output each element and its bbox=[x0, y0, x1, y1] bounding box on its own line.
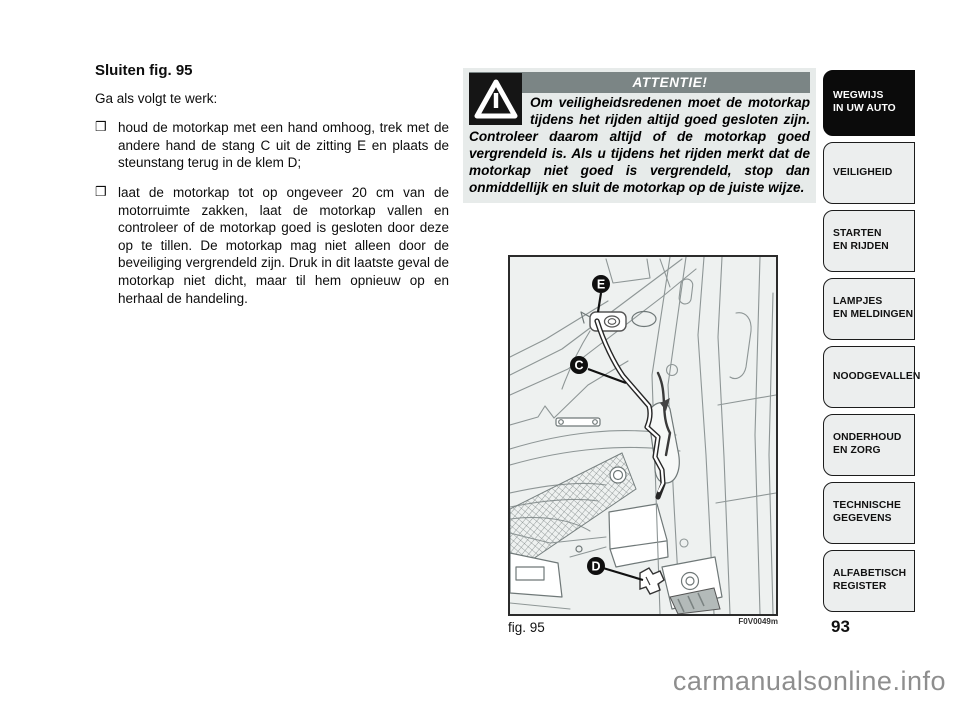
tab-label: LAMPJES EN MELDINGEN bbox=[833, 296, 913, 322]
section-intro: Ga als volgt te werk: bbox=[95, 90, 449, 108]
tab-label: ONDERHOUD EN ZORG bbox=[833, 432, 901, 458]
figure-label-c: C bbox=[574, 359, 583, 373]
sidebar-tab-wegwijs-in-uw-auto[interactable]: WEGWIJS IN UW AUTO bbox=[823, 70, 915, 136]
section-title: Sluiten fig. 95 bbox=[95, 62, 449, 80]
tab-label: TECHNISCHE GEGEVENS bbox=[833, 500, 901, 526]
tab-label: VEILIGHEID bbox=[833, 167, 892, 180]
bullet-square-icon: ❒ bbox=[95, 118, 107, 136]
tab-label: NOODGEVALLEN bbox=[833, 371, 920, 384]
engine-bay-diagram: E C D bbox=[510, 257, 776, 614]
sidebar-tab-noodgevallen[interactable]: NOODGEVALLEN bbox=[823, 346, 915, 408]
sidebar-tab-veiligheid[interactable]: VEILIGHEID bbox=[823, 142, 915, 204]
figure-label-e: E bbox=[597, 278, 605, 292]
sidebar-tab-lampjes-en-meldingen[interactable]: LAMPJES EN MELDINGEN bbox=[823, 278, 915, 340]
tab-label: STARTEN EN RIJDEN bbox=[833, 228, 889, 254]
watermark-link[interactable]: carmanualsonline.info bbox=[673, 666, 946, 697]
tab-label: WEGWIJS IN UW AUTO bbox=[833, 90, 896, 116]
warning-box: ATTENTIE! Om veiligheidsredenen moet de … bbox=[463, 68, 816, 203]
tab-label: ALFABETISCH REGISTER bbox=[833, 568, 906, 594]
instructions-section: Sluiten fig. 95 Ga als volgt te werk: ❒ … bbox=[95, 62, 449, 319]
list-item: ❒ laat de motorkap tot op ongeveer 20 cm… bbox=[95, 184, 449, 307]
list-item-text: laat de motorkap tot op ongeveer 20 cm v… bbox=[118, 185, 449, 306]
bullet-square-icon: ❒ bbox=[95, 183, 107, 201]
figure-code: F0V0049m bbox=[648, 617, 778, 626]
sidebar-tab-alfabetisch-register[interactable]: ALFABETISCH REGISTER bbox=[823, 550, 915, 612]
figure-caption: fig. 95 bbox=[508, 620, 545, 635]
page-number: 93 bbox=[831, 617, 850, 637]
sidebar-tab-starten-en-rijden[interactable]: STARTEN EN RIJDEN bbox=[823, 210, 915, 272]
warning-triangle-icon bbox=[469, 73, 522, 125]
figure-illustration: E C D bbox=[508, 255, 778, 616]
sidebar-tab-technische-gegevens[interactable]: TECHNISCHE GEGEVENS bbox=[823, 482, 915, 544]
figure-label-d: D bbox=[591, 560, 600, 574]
sidebar-tab-onderhoud-en-zorg[interactable]: ONDERHOUD EN ZORG bbox=[823, 414, 915, 476]
sidebar-nav: WEGWIJS IN UW AUTO VEILIGHEID STARTEN EN… bbox=[823, 70, 915, 618]
list-item-text: houd de motorkap met een hand omhoog, tr… bbox=[118, 120, 449, 170]
list-item: ❒ houd de motorkap met een hand omhoog, … bbox=[95, 119, 449, 172]
